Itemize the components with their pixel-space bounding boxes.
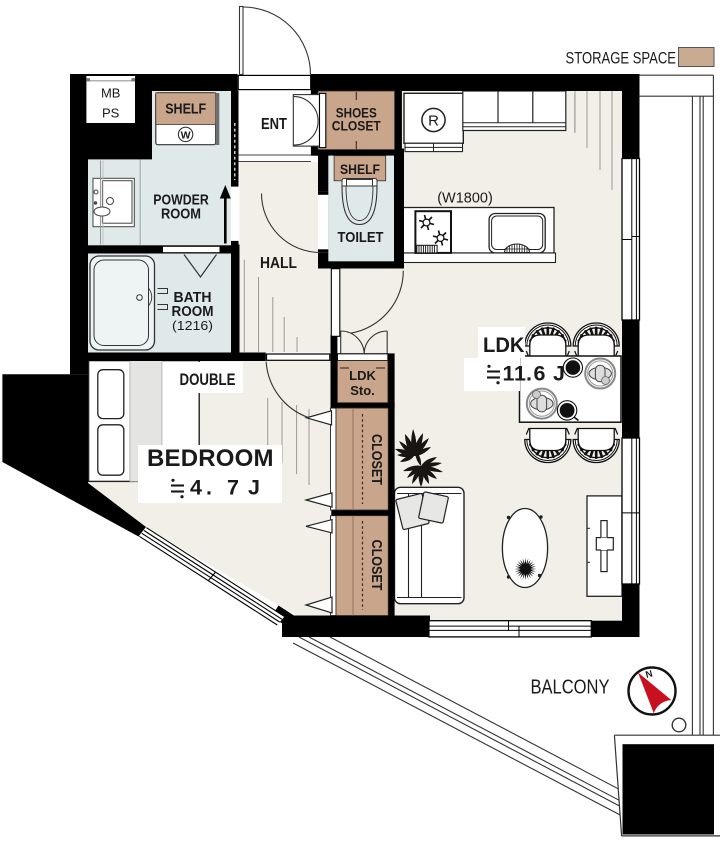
svg-text:CLOSET: CLOSET <box>368 434 385 485</box>
svg-text:CLOSET: CLOSET <box>368 540 385 591</box>
svg-text:LDK: LDK <box>483 333 525 357</box>
svg-text:CLOSET: CLOSET <box>332 118 381 134</box>
svg-text:(W1800): (W1800) <box>437 191 493 207</box>
svg-text:TOILET: TOILET <box>338 229 384 246</box>
svg-text:11.6J: 11.6J <box>503 362 565 386</box>
svg-text:PS: PS <box>102 106 120 121</box>
svg-text:R: R <box>428 113 439 130</box>
svg-text:SHELF: SHELF <box>340 161 380 177</box>
svg-text:DOUBLE: DOUBLE <box>180 371 236 389</box>
svg-text:SHELF: SHELF <box>165 102 206 118</box>
svg-text:HALL: HALL <box>260 255 297 272</box>
svg-text:LDK: LDK <box>349 368 376 383</box>
svg-text:STORAGE SPACE: STORAGE SPACE <box>566 49 677 68</box>
svg-text:Sto.: Sto. <box>350 383 375 398</box>
svg-text:(1216): (1216) <box>172 318 213 333</box>
svg-text:BALCONY: BALCONY <box>531 676 610 699</box>
svg-text:ROOM: ROOM <box>161 206 201 223</box>
svg-text:BEDROOM: BEDROOM <box>147 445 274 472</box>
svg-text:W: W <box>181 129 191 141</box>
svg-text:MB: MB <box>101 86 121 101</box>
svg-text:ENT: ENT <box>261 116 287 133</box>
